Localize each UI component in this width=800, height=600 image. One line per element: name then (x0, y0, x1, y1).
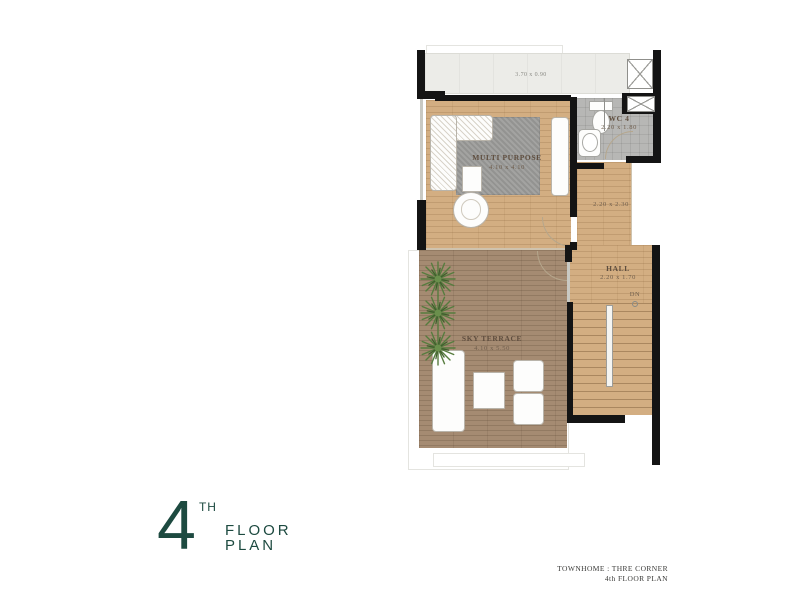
staircase (573, 303, 653, 415)
wall-left-mid (417, 200, 426, 250)
title-word-plan: PLAN (225, 538, 292, 553)
wall-wc-corridor (577, 163, 604, 169)
stair-railing (606, 305, 613, 387)
terrace-chair-1 (513, 360, 544, 392)
lower-edge-outline (433, 453, 585, 467)
stairs-dn-marker (632, 301, 638, 307)
sky-terrace-dim-label: 4.10 x 5.50 (474, 345, 510, 352)
glass-hall-terrace (567, 262, 570, 302)
footer-caption: TOWNHOME : THRE CORNER 4th FLOOR PLAN (557, 564, 668, 584)
title-block: 4 TH FLOOR PLAN (157, 492, 292, 558)
tv-console (551, 117, 569, 196)
plant-icon (418, 293, 458, 333)
shaft-hatch-top (627, 59, 653, 89)
side-table (462, 166, 482, 192)
wc-label: WC 4 (609, 114, 630, 123)
wall-stairs-bottom (567, 415, 625, 423)
wall-top-left-vertical (417, 50, 425, 95)
hall-label: HALL (606, 264, 630, 273)
plant-icon (418, 328, 458, 368)
corridor-right-edge (631, 163, 632, 245)
window-left (420, 99, 423, 200)
wall-below-wc-right (626, 156, 661, 163)
footer-project-name: TOWNHOME : THRE CORNER (557, 564, 668, 574)
floor-plan-title: FLOOR PLAN (225, 523, 292, 553)
wall-stairs-left (567, 302, 573, 423)
sofa-l-side (430, 115, 457, 191)
floor-ordinal: TH (199, 500, 217, 514)
floor-number: 4 (157, 492, 196, 558)
footer-sheet-name: 4th FLOOR PLAN (557, 574, 668, 584)
hall-dim-label: 2.20 x 1.70 (600, 274, 636, 281)
multi-purpose-label: MULTI PURPOSE (472, 153, 541, 162)
title-word-floor: FLOOR (225, 523, 292, 538)
floor-plan-page: 3.70 x 0.90 MULTI PURPOSE 4.10 x 4.10 WC… (0, 0, 800, 600)
wall-right-lower (652, 245, 660, 465)
wc-dim-label: 2.20 x 1.80 (601, 124, 637, 131)
stairs-dn-label: DN (630, 291, 641, 298)
wall-hall-terrace-stub (565, 245, 572, 262)
corridor-dim-label: 2.20 x 2.30 (593, 201, 629, 208)
sliding-door-terrace (426, 248, 566, 250)
sky-terrace-label: SKY TERRACE (462, 334, 522, 343)
floor-plan-drawing: 3.70 x 0.90 MULTI PURPOSE 4.10 x 4.10 WC… (405, 45, 667, 470)
terrace-chair-2 (513, 393, 544, 425)
balcony-dim-label: 3.70 x 0.90 (515, 72, 546, 78)
multi-purpose-dim-label: 4.10 x 4.10 (489, 164, 525, 171)
wall-mid-vertical-upper (570, 97, 577, 217)
wall-multi-purpose-top (435, 95, 571, 101)
lounge-chair (453, 192, 489, 228)
terrace-coffee-table (473, 372, 505, 409)
shaft-hatch-small (627, 96, 655, 112)
wc-sink (578, 129, 601, 157)
